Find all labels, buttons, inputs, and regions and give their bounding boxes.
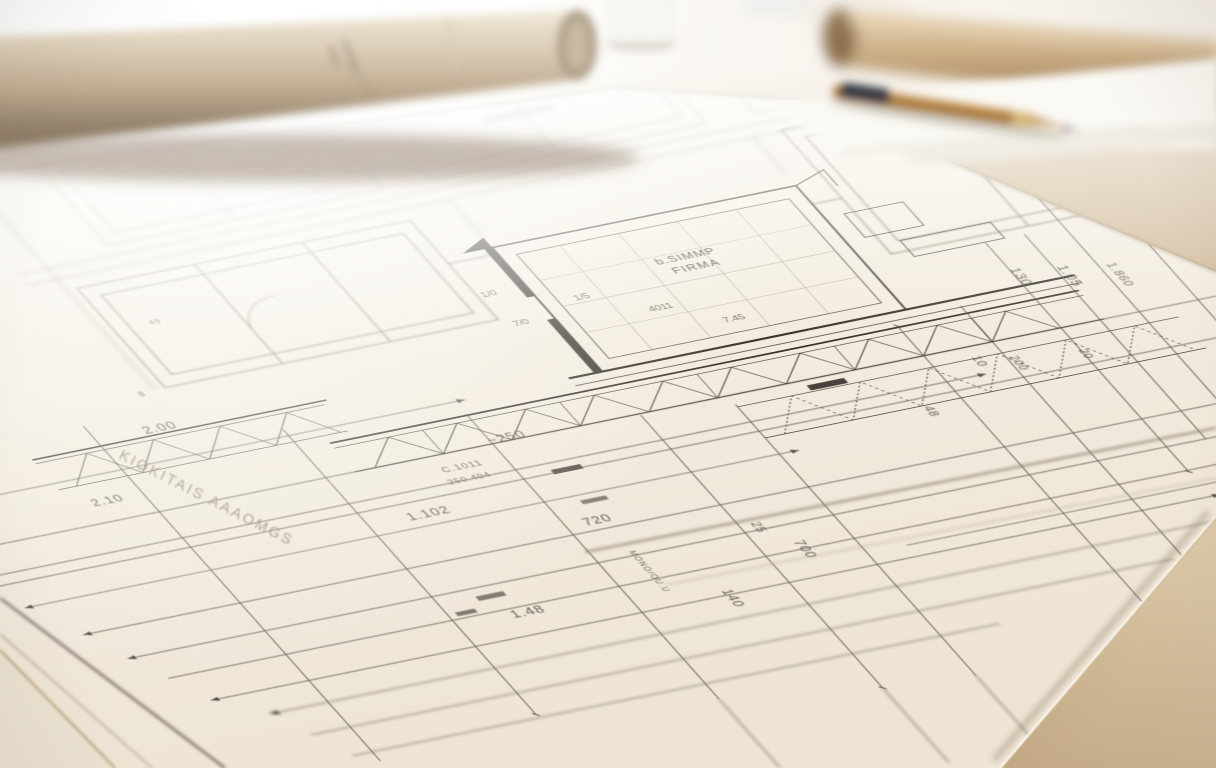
- vignette-overlay: [0, 0, 1216, 768]
- blueprint-photo: b.SIMMP FIRMA 1/5 4011 7.45 1/0 7/0: [0, 0, 1216, 768]
- photo-scene: b.SIMMP FIRMA 1/5 4011 7.45 1/0 7/0: [0, 0, 1216, 768]
